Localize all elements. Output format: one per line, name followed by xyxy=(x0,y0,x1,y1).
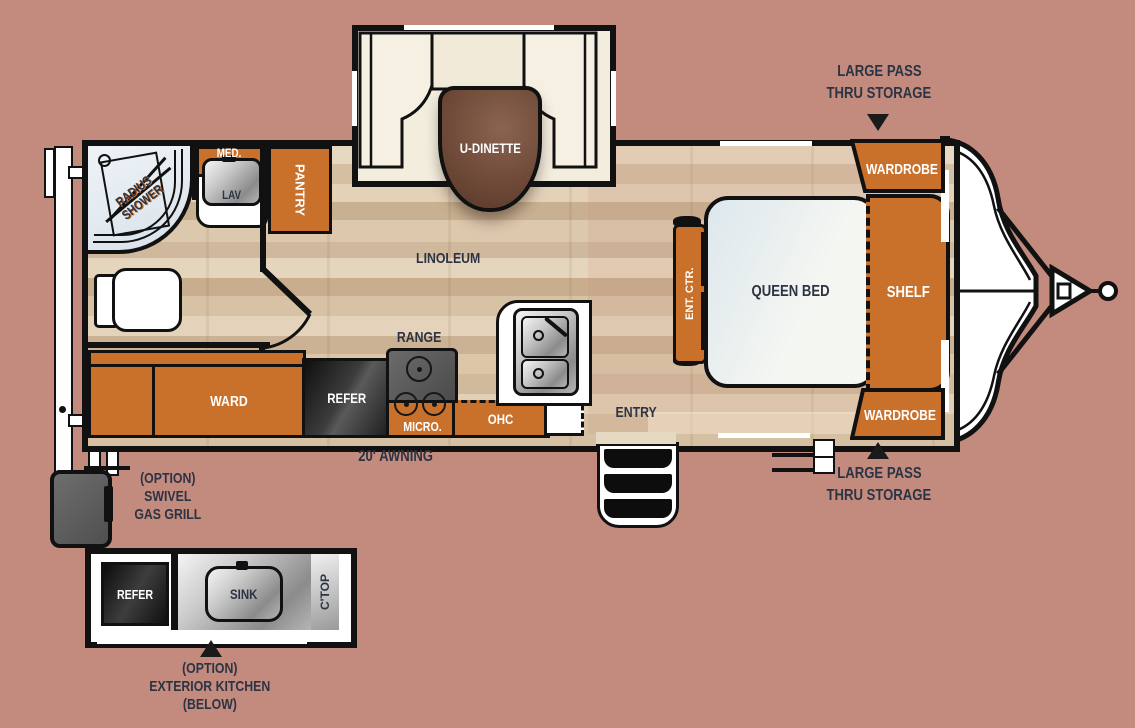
micro-label: MICRO. xyxy=(389,417,455,435)
awning-label: 20' AWNING xyxy=(330,446,462,468)
step xyxy=(604,499,672,518)
ent-ctr-label: ENT. CTR. xyxy=(676,227,704,361)
arrow-up-icon xyxy=(200,640,222,657)
lavatory-sink: LAV xyxy=(202,158,262,206)
bathroom-door-graphic xyxy=(258,268,328,352)
sink-bowl xyxy=(521,316,569,358)
bathroom-wall xyxy=(260,146,266,272)
wardrobe-top-label: WARDROBE xyxy=(866,161,938,178)
ext-refer-label: REFER xyxy=(104,565,166,623)
shelf-label: SHELF xyxy=(870,198,946,388)
storage-bracket-line xyxy=(772,453,816,457)
entry-label: ENTRY xyxy=(594,402,678,422)
lav-label: LAV xyxy=(205,188,259,202)
queen-bed-label: QUEEN BED xyxy=(708,200,874,384)
entry-steps xyxy=(597,442,679,528)
refrigerator: REFER xyxy=(302,358,392,438)
arrow-up-icon xyxy=(867,442,889,459)
burner-icon xyxy=(422,392,446,416)
grill-option-label: (OPTION) SWIVEL GAS GRILL xyxy=(108,468,228,526)
range-label: RANGE xyxy=(384,328,454,346)
ext-countertop: C'TOP xyxy=(311,554,339,630)
floorplan-canvas: RADIUS SHOWER LAV MED. PANTRY xyxy=(0,0,1135,728)
med-label: MED. xyxy=(196,146,262,160)
step xyxy=(604,449,672,468)
ext-refrigerator: REFER xyxy=(101,562,169,626)
entry-threshold xyxy=(596,432,676,446)
dinette-label: U-DINETTE xyxy=(442,138,538,158)
ward-cabinet-left xyxy=(88,364,158,438)
swivel-gas-grill xyxy=(50,470,112,548)
annotation-pass-thru-top: LARGE PASS THRU STORAGE xyxy=(793,60,965,106)
sink-bowl xyxy=(521,359,569,389)
pantry-label: PANTRY xyxy=(271,149,329,231)
trailer-nose-graphic xyxy=(940,136,1120,446)
window-strip xyxy=(611,71,616,126)
sink-counter xyxy=(496,300,592,406)
shelf-cabinet: SHELF xyxy=(866,194,950,392)
annotation-pass-thru-bottom: LARGE PASS THRU STORAGE xyxy=(793,462,965,508)
ladder-pivot-icon xyxy=(59,406,66,413)
drain-icon xyxy=(533,368,544,379)
step xyxy=(604,474,672,493)
ohc-label: OHC xyxy=(455,403,547,435)
ward-cabinet: WARD xyxy=(152,364,306,438)
kitchen-sink xyxy=(513,308,579,396)
window-strip xyxy=(720,141,812,146)
window-strip xyxy=(352,71,357,126)
ext-ctop-label: C'TOP xyxy=(311,554,339,630)
ext-kitchen-divider xyxy=(171,554,178,630)
rear-ladder-rail xyxy=(54,146,73,484)
burner-icon xyxy=(406,356,432,382)
queen-bed: QUEEN BED xyxy=(704,196,878,388)
linoleum-label: LINOLEUM xyxy=(396,248,500,268)
pantry-cabinet: PANTRY xyxy=(268,146,332,234)
window-strip xyxy=(404,25,554,30)
ext-sink: SINK xyxy=(205,566,283,622)
ward-label: WARD xyxy=(155,367,303,435)
radius-shower: RADIUS SHOWER xyxy=(88,146,194,254)
exterior-kitchen-label: (OPTION) EXTERIOR KITCHEN (BELOW) xyxy=(115,658,305,716)
wardrobe-bottom-label: WARDROBE xyxy=(864,407,936,424)
exterior-kitchen: REFER SINK C'TOP xyxy=(85,548,357,648)
window-strip xyxy=(718,433,810,438)
bathroom-wall xyxy=(88,342,270,348)
wardrobe-front-top: WARDROBE xyxy=(850,139,945,193)
arrow-down-icon xyxy=(867,114,889,131)
burner-icon xyxy=(394,392,418,416)
drain-icon xyxy=(533,330,544,341)
ext-sink-label: SINK xyxy=(208,569,280,619)
refer-label: REFER xyxy=(305,361,389,435)
wardrobe-front-bottom: WARDROBE xyxy=(850,388,945,440)
toilet xyxy=(112,268,182,332)
